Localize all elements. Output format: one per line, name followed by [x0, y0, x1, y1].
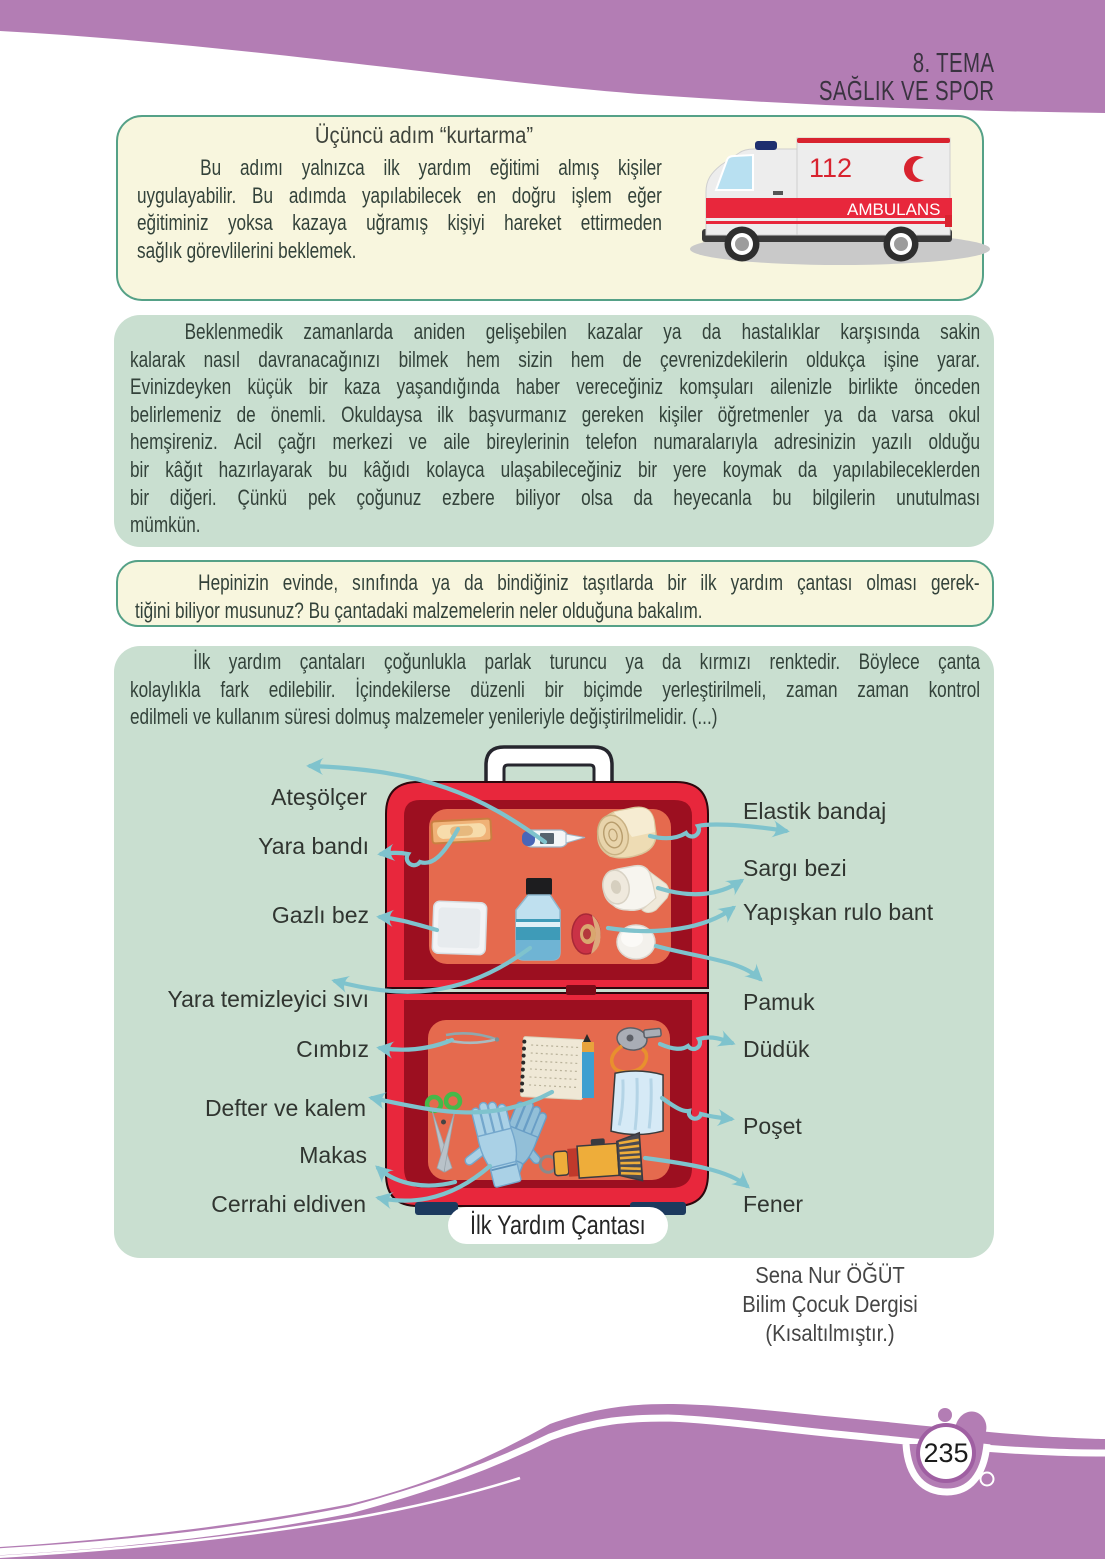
- svg-text:235: 235: [923, 1438, 968, 1468]
